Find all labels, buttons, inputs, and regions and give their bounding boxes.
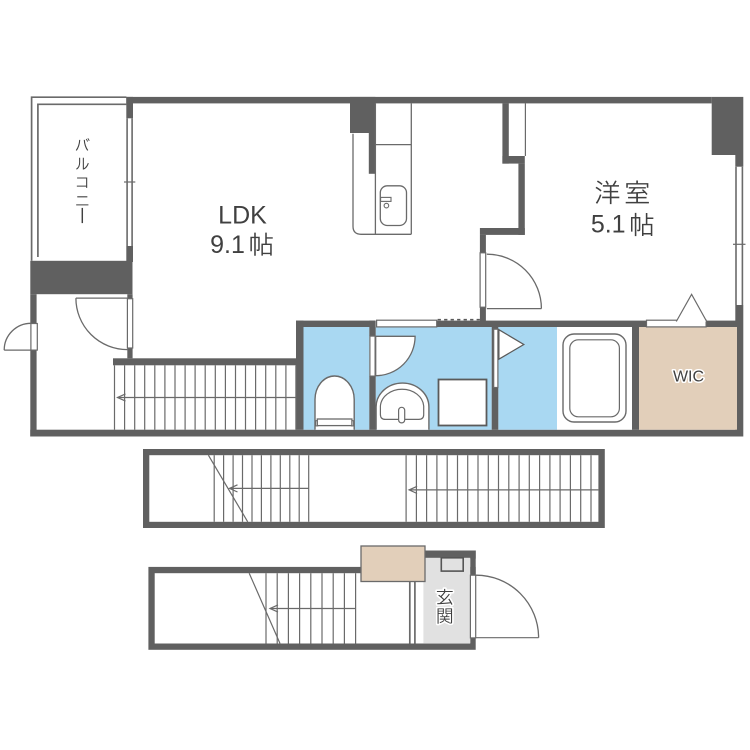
svg-text:LDK: LDK (218, 202, 267, 230)
svg-text:WIC: WIC (673, 369, 704, 386)
svg-text:5.1: 5.1 (591, 211, 626, 239)
svg-text:9.1: 9.1 (210, 231, 245, 259)
